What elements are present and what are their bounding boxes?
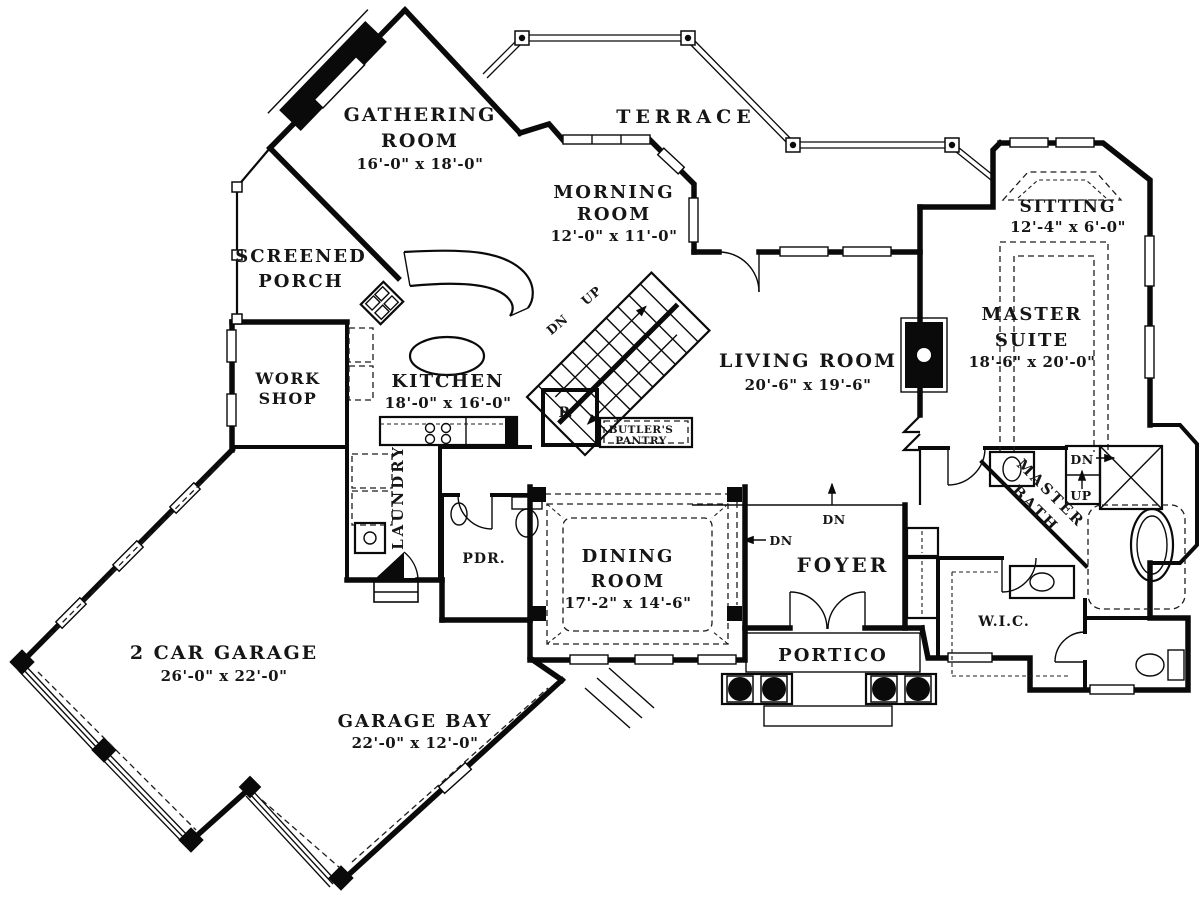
room-label-dining-room-2: ROOM	[591, 571, 665, 592]
room-label-morning-room-2: ROOM	[577, 204, 651, 225]
room-label-master-suite: MASTER	[982, 304, 1083, 325]
room-dims-kitchen: 18'-0" x 16'-0"	[385, 394, 512, 412]
room-label-powder-room: PDR.	[462, 551, 505, 567]
room-label-terrace: TERRACE	[616, 106, 756, 128]
room-label-dining-room: DINING	[582, 546, 675, 567]
room-label-morning-room: MORNING	[553, 182, 674, 203]
room-dims-garage-bay: 22'-0" x 12'-0"	[352, 734, 479, 752]
screened-porch-walls	[232, 148, 270, 324]
room-dims-dining-room: 17'-2" x 14'-6"	[565, 594, 692, 612]
floor-plan-drawing: GATHERING ROOM 16'-0" x 18'-0" TERRACE M…	[0, 0, 1200, 904]
master-fireplace	[901, 318, 947, 392]
room-label-wic: W.I.C.	[977, 614, 1030, 630]
room-label-sitting: SITTING	[1020, 197, 1117, 217]
room-dims-sitting: 12'-4" x 6'-0"	[1010, 218, 1126, 236]
room-dims-gathering-room: 16'-0" x 18'-0"	[357, 155, 484, 173]
room-dims-morning-room: 12'-0" x 11'-0"	[551, 227, 678, 245]
room-label-butlers-pantry-2: PANTRY	[615, 435, 667, 447]
room-dims-living-room: 20'-6" x 19'-6"	[745, 376, 872, 394]
master-dn-label: DN	[1070, 452, 1093, 467]
floor-plan-page: GATHERING ROOM 16'-0" x 18'-0" TERRACE M…	[0, 0, 1200, 904]
room-label-foyer: FOYER	[797, 553, 890, 577]
garage-door-posts	[9, 649, 353, 890]
room-label-living-room: LIVING ROOM	[719, 350, 897, 372]
dining-dn-label: DN	[769, 533, 792, 548]
wall-oven-stack	[361, 282, 403, 324]
room-label-gathering-room: GATHERING	[344, 104, 497, 126]
portico-columns	[727, 676, 931, 702]
room-label-screened-porch-2: PORCH	[258, 271, 344, 292]
living-room-door	[719, 252, 759, 292]
room-label-portico: PORTICO	[778, 645, 888, 666]
stairs-up-label: UP	[578, 283, 604, 308]
room-label-garage: 2 CAR GARAGE	[130, 642, 318, 664]
room-label-work-shop: WORK	[254, 369, 320, 388]
room-dims-master-suite: 18'-6" x 20'-0"	[969, 353, 1096, 371]
room-label-pantry-closet: P.	[558, 405, 573, 421]
room-dims-garage: 26'-0" x 22'-0"	[161, 667, 288, 685]
master-wing-details	[904, 172, 1185, 680]
room-label-gathering-room-2: ROOM	[381, 130, 459, 152]
room-label-kitchen: KITCHEN	[392, 371, 505, 392]
room-label-garage-bay: GARAGE BAY	[338, 711, 493, 732]
room-label-work-shop-2: SHOP	[259, 389, 318, 408]
master-up-label: UP	[1070, 488, 1091, 503]
room-label-laundry: LAUNDRY	[389, 444, 407, 550]
foyer-dn-label: DN	[822, 512, 845, 527]
room-label-screened-porch: SCREENED	[235, 246, 367, 267]
stairs-down-label: DN	[543, 311, 570, 337]
room-label-master-suite-2: SUITE	[995, 330, 1069, 351]
